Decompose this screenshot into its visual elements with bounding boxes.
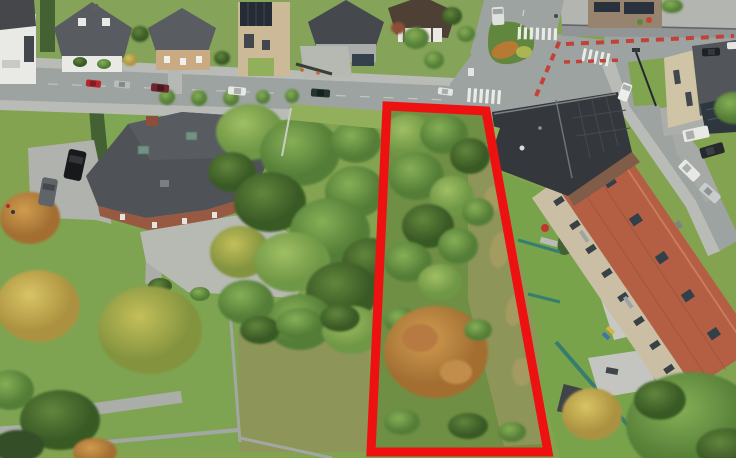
pedestrian: [11, 210, 15, 214]
pedestrian: [554, 14, 558, 18]
aerial-photo: [0, 0, 736, 458]
car-darkgreen: [311, 88, 331, 97]
car-dark-east: [702, 48, 720, 57]
car-white-east: [727, 42, 736, 50]
lamp-head: [632, 48, 640, 52]
haze-overlay: [0, 0, 736, 458]
aerial-photo-canvas: [0, 0, 736, 458]
pedestrian: [6, 204, 10, 208]
van-white-north: [492, 7, 505, 26]
car-white: [228, 86, 247, 96]
traffic-sign: [468, 68, 474, 76]
